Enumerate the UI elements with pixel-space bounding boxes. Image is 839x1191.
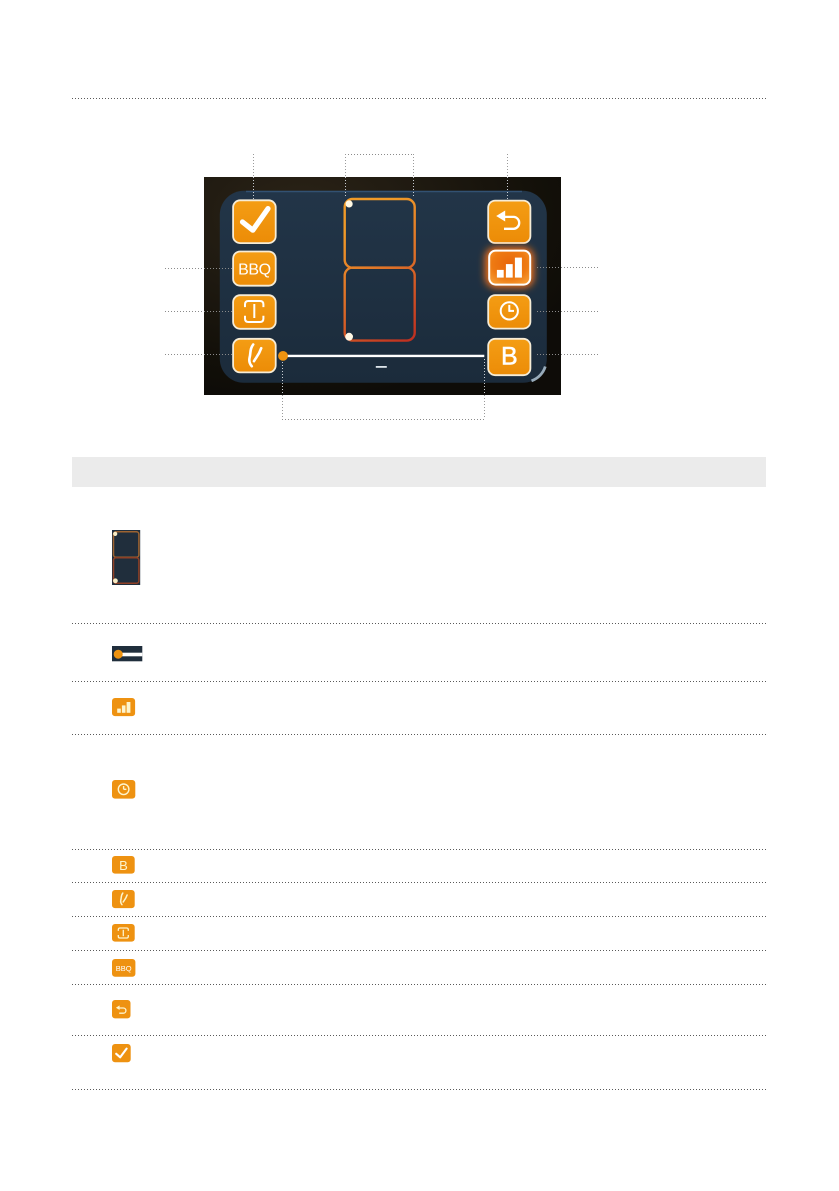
svg-text:B: B <box>501 343 518 371</box>
svg-text:B: B <box>119 858 128 873</box>
svg-text:BBQ: BBQ <box>115 964 131 973</box>
svg-text:BBQ: BBQ <box>238 261 271 278</box>
